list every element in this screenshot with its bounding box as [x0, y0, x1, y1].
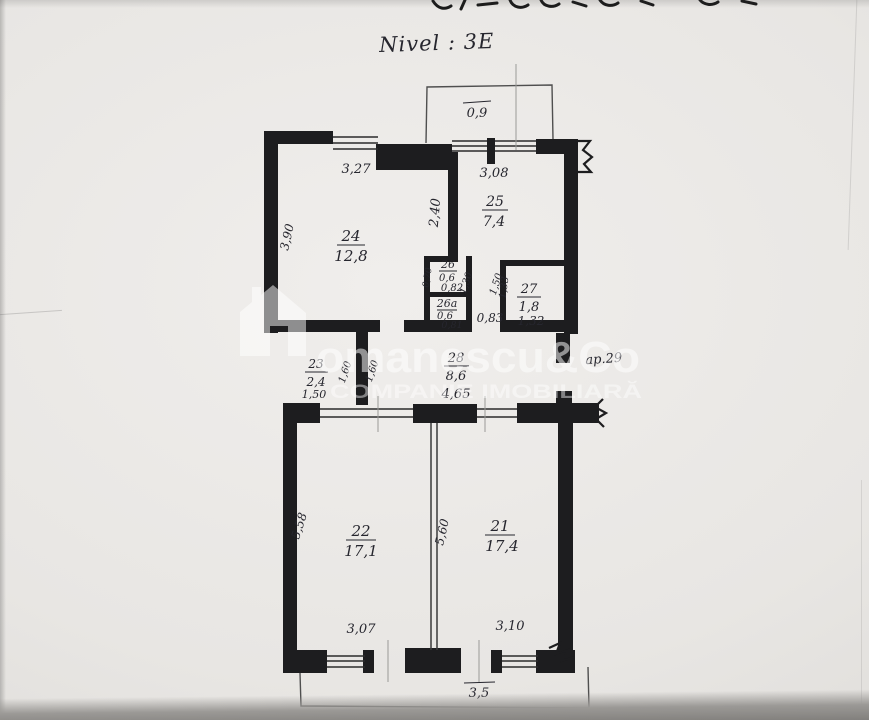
balcony-top: 0,9	[426, 85, 553, 143]
dim-room-21-height: 5,60	[432, 517, 452, 547]
room-22-area: 17,1	[344, 542, 377, 560]
room-25-area: 7,4	[483, 214, 505, 230]
room-24-number: 24	[340, 227, 360, 245]
room-22-number: 22	[350, 522, 370, 540]
page-edge-left	[0, 0, 6, 720]
scanned-floor-plan-page: Nivel : 3E 0,9	[0, 0, 869, 720]
dim-room-26a-width: 0,81	[441, 320, 462, 331]
floor-plan-drawing: Nivel : 3E 0,9	[0, 0, 869, 720]
room-24-area: 12,8	[334, 247, 367, 265]
watermark-brand: omanescu&Co	[316, 333, 640, 382]
room-21-number: 21	[489, 517, 509, 535]
dim-room-22-width: 3,07	[347, 622, 377, 637]
dim-room-23-width: 1,50	[302, 388, 327, 401]
dim-room-24-height: 3,90	[277, 222, 297, 252]
room-26-number: 26	[440, 258, 455, 271]
lower-walls	[283, 403, 575, 682]
dim-room-27-width: 1,32	[518, 314, 545, 328]
dim-room-25-width: 3,08	[480, 166, 509, 181]
dim-room-24-width: 3,27	[342, 162, 372, 177]
room-25-number: 25	[485, 194, 504, 210]
page-edge-top	[0, 0, 869, 8]
dim-room-26-height: 0,70	[421, 267, 434, 289]
balcony-top-area: 0,9	[467, 106, 488, 121]
watermark-tagline: COMPANIE IMOBILIARĂ	[330, 381, 642, 403]
dim-room-21-width: 3,10	[496, 619, 525, 634]
page-title: Nivel : 3E	[378, 29, 495, 57]
paper-crease-right-bottom	[861, 480, 862, 720]
room-27-number: 27	[520, 282, 538, 297]
dim-lobby-width: 0,83	[477, 311, 504, 325]
room-27-area: 1,8	[519, 300, 540, 315]
watermark-logo-icon	[240, 285, 306, 356]
room-26a-number: 26a	[436, 297, 458, 310]
dim-lobby-depth-left: 1,30	[458, 270, 476, 295]
dim-room-27-height: 1,33	[498, 276, 512, 300]
dim-room-25-height: 2,40	[427, 198, 445, 229]
room-21-area: 17,4	[485, 537, 518, 555]
